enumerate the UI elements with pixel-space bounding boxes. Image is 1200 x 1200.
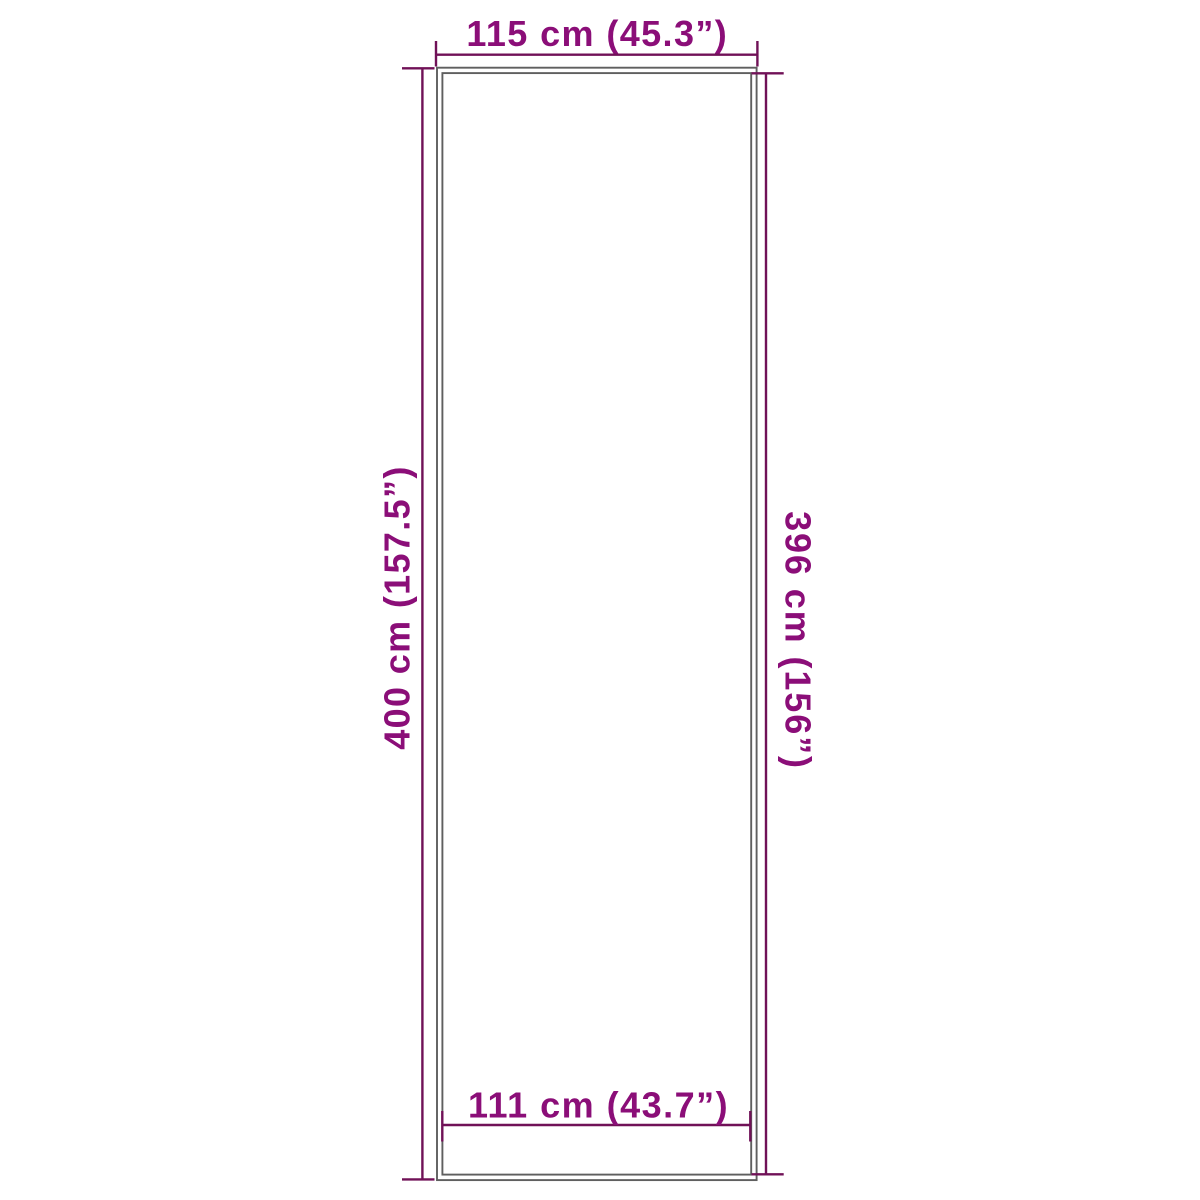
svg-text:111 cm (43.7”): 111 cm (43.7”) [468,1084,729,1125]
svg-text:400 cm (157.5”): 400 cm (157.5”) [377,465,418,749]
svg-text:115 cm (45.3”): 115 cm (45.3”) [466,13,728,54]
svg-text:396 cm (156”): 396 cm (156”) [778,511,819,770]
